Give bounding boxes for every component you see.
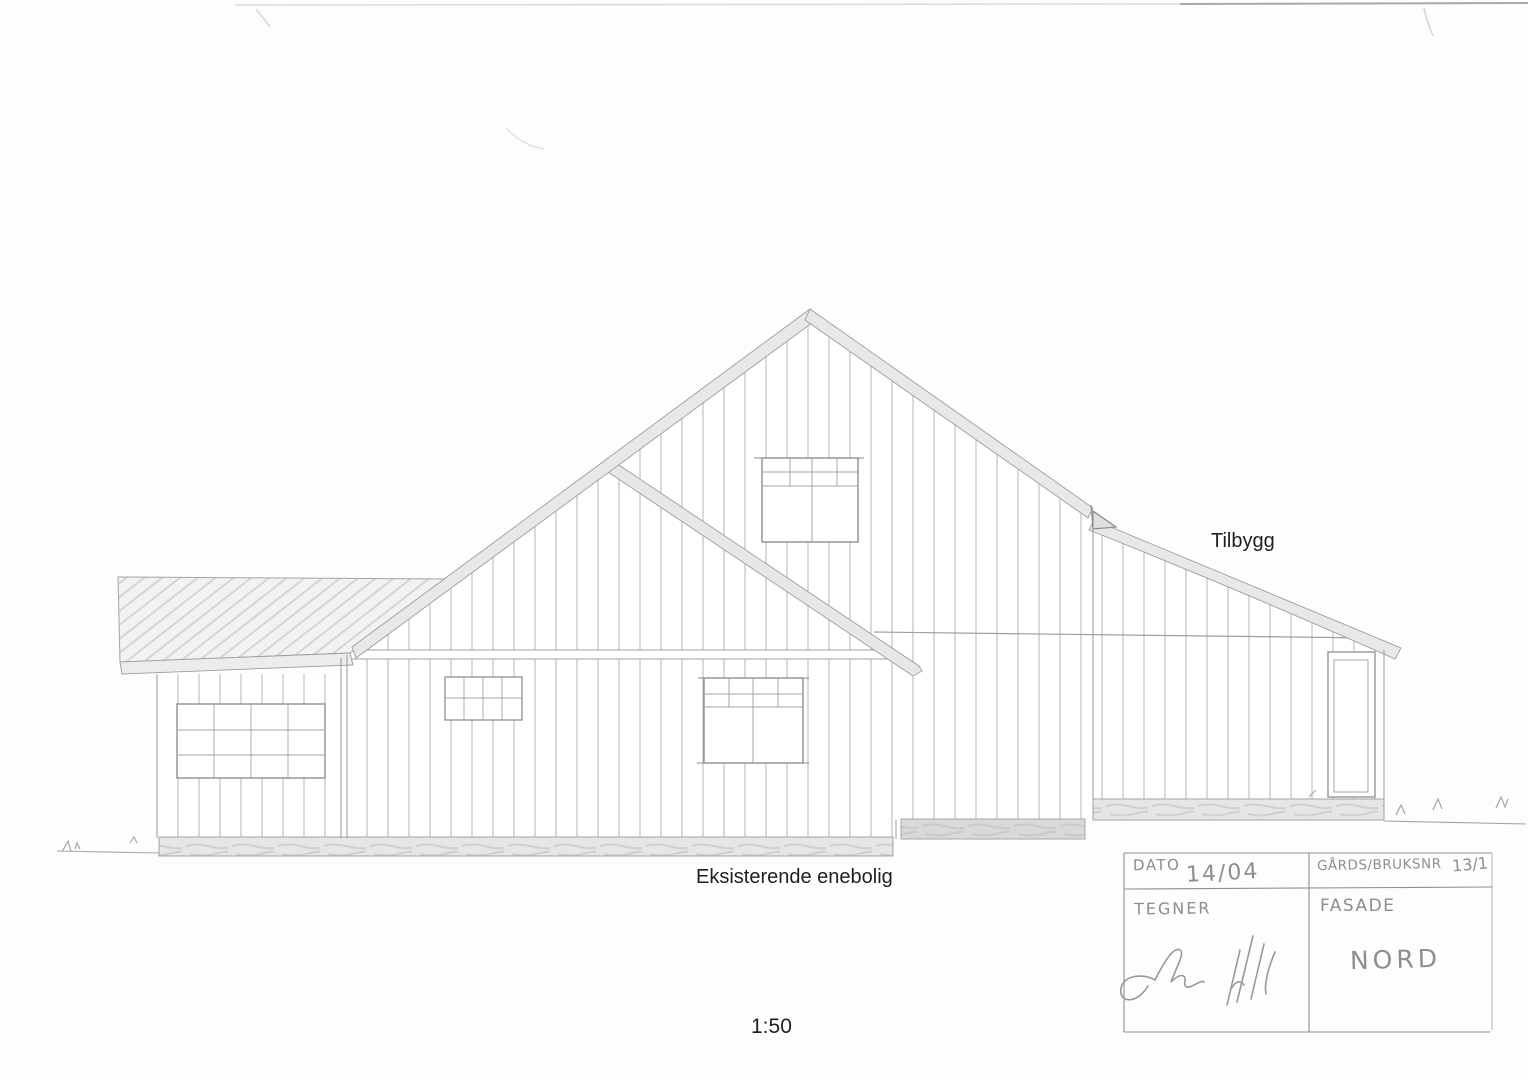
title-block-parcel-value: 13/1 xyxy=(1451,853,1488,875)
window-left-wing xyxy=(177,704,325,778)
title-block-parcel-label: GÅRDS/BRUKSNR xyxy=(1317,856,1442,874)
scan-artifacts xyxy=(235,3,1528,149)
grass-tuft xyxy=(1433,799,1442,810)
label-existing-house: Eksisterende enebolig xyxy=(696,866,893,889)
title-block-lines xyxy=(1124,853,1492,1032)
title-block-date-label: DATO xyxy=(1133,856,1181,874)
title-block-drawn-by-label: TEGNER xyxy=(1134,898,1212,918)
window-main-lower xyxy=(697,678,809,763)
grass-tuft xyxy=(62,841,80,852)
roof-junction-step xyxy=(1091,505,1116,529)
title-block-view-label: FASADE xyxy=(1320,896,1395,916)
window-gable xyxy=(754,458,864,542)
window-small-middle xyxy=(445,677,522,720)
title-block-date-value: 14/04 xyxy=(1185,859,1260,888)
addition-door xyxy=(1328,652,1375,797)
label-scale: 1:50 xyxy=(751,1015,792,1039)
left-trim-band xyxy=(348,650,890,659)
signature-scribble xyxy=(1121,936,1275,1005)
grass-tuft xyxy=(1496,797,1508,808)
scanned-elevation-sheet: Tilbygg Eksisterende enebolig 1:50 DATO … xyxy=(0,0,1528,1080)
label-addition: Tilbygg xyxy=(1211,530,1275,553)
foundation-addition xyxy=(1093,799,1384,820)
title-block-view-value: NORD xyxy=(1350,944,1442,975)
grass-tuft xyxy=(1396,805,1405,815)
grass-tuft xyxy=(130,837,137,843)
foundation-left xyxy=(159,837,893,856)
elevation-drawing xyxy=(0,0,1528,1080)
